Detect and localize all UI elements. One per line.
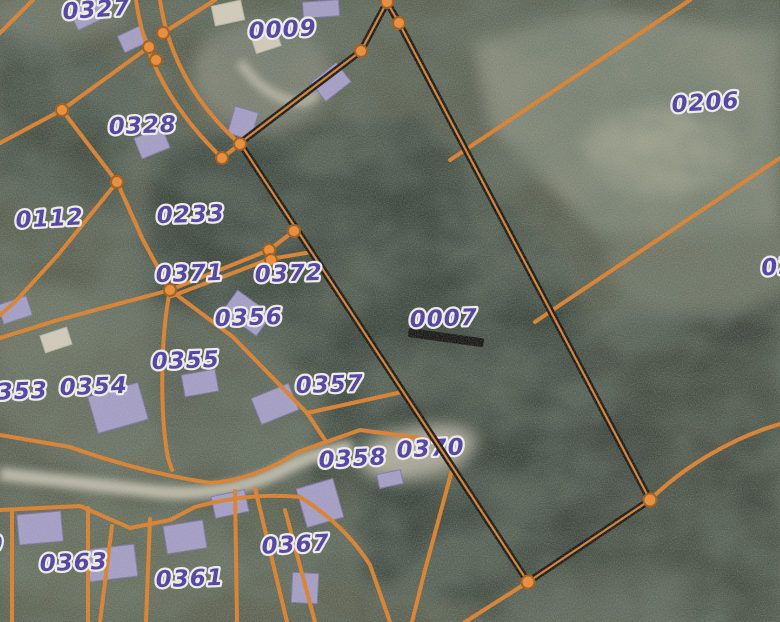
parcel-label-0367: 0367 (261, 530, 330, 560)
parcel-label-0358: 0358 (318, 444, 387, 474)
vertex-dot (393, 17, 405, 29)
parcel-label-0372: 0372 (254, 260, 323, 288)
building-footprint (17, 511, 63, 545)
cadastral-map[interactable]: 0370 03270009020603280112023303710372035… (0, 0, 780, 622)
vertex-dot (381, 0, 393, 8)
vertex-dot (288, 225, 300, 237)
parcel-label-0-partial: 0 (0, 532, 4, 558)
parcel-label-0355: 0355 (151, 347, 220, 375)
parcel-label-0371: 0371 (155, 260, 224, 288)
vertex-dot (111, 176, 123, 188)
parcel-label-0353-partial: 0353 (0, 378, 48, 406)
parcel-label-0357: 0357 (295, 371, 364, 399)
vertex-dot (150, 54, 162, 66)
parcel-label-0009: 0009 (248, 15, 317, 45)
boundary-segment (235, 491, 237, 622)
parcel-label-0206: 0206 (671, 88, 741, 119)
parcel-label-0007: 0007 (409, 305, 478, 333)
map-canvas: 0370 03270009020603280112023303710372035… (0, 0, 780, 622)
parcel-label-0233: 0233 (156, 201, 225, 229)
parcel-label-0363: 0363 (39, 549, 108, 577)
parcel-label-0361: 0361 (155, 565, 224, 593)
vertex-dot (216, 152, 228, 164)
terrain-mottle-texture (0, 0, 780, 622)
building-footprint (163, 520, 207, 554)
vertex-dot (355, 45, 367, 57)
parcel-label-0354: 0354 (59, 373, 128, 401)
vertex-dot (644, 494, 657, 507)
vertex-dot (143, 41, 155, 53)
vertex-dot (157, 27, 169, 39)
parcel-label-02-partial: 02 (760, 252, 780, 281)
aerial-background (0, 0, 780, 622)
parcel-label-0356: 0356 (214, 304, 283, 332)
vertex-dot (522, 576, 535, 589)
parcel-label-0112: 0112 (15, 204, 84, 234)
parcel-label-0328: 0328 (108, 112, 177, 140)
vertex-dot (56, 104, 68, 116)
vertex-dot (234, 138, 246, 150)
